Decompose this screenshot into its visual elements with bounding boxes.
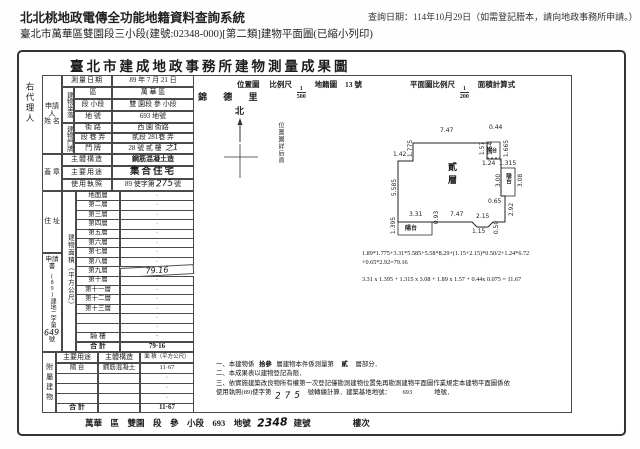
license-hand-number: 275 — [156, 180, 174, 190]
survey-date-value: 89 年 7 月 21 日 — [112, 75, 194, 87]
dim-balcony-tr-left: 1.57 — [479, 142, 486, 155]
floor-plan: 7.47 1.775 1.42 5.585 3.31 1.395 0.93 陽台… — [388, 118, 578, 243]
note-1-fill-floors: 拾參 — [259, 361, 272, 368]
plan-scale-line: 平面圖比例尺 1 200 面積計算式 — [410, 79, 515, 100]
license-label: 使用執照 — [62, 179, 112, 191]
plate-hand-annotation: 之1 — [164, 144, 178, 153]
plate-value-text: 28 號 貳 樓 — [128, 145, 161, 152]
plan-floor-label: 貳層 — [446, 162, 459, 192]
note-3-license-pre: 使用執照(89)使字第 — [216, 389, 271, 396]
cadastral-map-number: 13 號 — [345, 80, 362, 89]
section-value: 雙 園段 參 小段 — [112, 99, 194, 111]
footer-building-no-label: 建號 — [294, 418, 311, 428]
dim-left: 5.585 — [391, 179, 398, 196]
note-3-text: 號轉繪計算．建築基地地號： — [308, 389, 391, 396]
dim-balcony-bl-top: 3.31 — [409, 211, 422, 218]
dim-right: 2.92 — [508, 203, 515, 216]
dim-topleft-v: 1.775 — [407, 140, 414, 157]
address-label: 住 址 — [42, 191, 62, 253]
applicant-label-line2: 姓 名 — [44, 118, 60, 125]
dim-notch-top: 2.15 — [476, 213, 489, 220]
district-value: 萬 華 區 — [112, 87, 194, 99]
cadastral-map-label: 地籍圖 — [315, 80, 338, 89]
seal-label: 蓋 章 — [42, 154, 62, 191]
applicant-name-label: 申請人 姓 名 — [42, 75, 62, 154]
dim-balcony-tr-right: 1.665 — [503, 140, 510, 157]
footer-strip: 萬華 區 雙園 段 參 小段 693 地號 2348 建號 樓次 — [85, 416, 370, 429]
lane-value: 貳段 281巷 弄 — [112, 133, 194, 143]
door-plate-group: 建物門牌 — [62, 123, 74, 154]
footer-floor-label: 樓次 — [353, 418, 370, 428]
dim-notch-height: 0.50 — [493, 221, 500, 234]
note-1: 一、本建物係 拾參 層建物本件係測量第 貳 層部分． — [216, 359, 381, 368]
balcony-label-bl: 陽台 — [405, 223, 417, 232]
annex-side-label: 附屬建物 — [42, 352, 56, 413]
floor-area-column-header: 建物面積（平方公尺） — [62, 191, 76, 352]
district-label: 區 — [74, 87, 112, 99]
scale-fraction-500: 1 500 — [297, 86, 306, 100]
application-doc-number-prefix: (89)建地二字第 — [49, 273, 55, 329]
dim-left-step: 1.42 — [393, 151, 406, 158]
scale-label: 比例尺 — [269, 80, 292, 89]
document-subtitle: 臺北市萬華區雙園段三小段(建號:02348-000)[第二類]建物平面圖(已縮小… — [20, 26, 373, 41]
north-arrow-icon: 北 — [222, 100, 262, 180]
north-indicator: 北 — [222, 100, 262, 180]
landno-value: 693 地號 — [112, 111, 194, 123]
application-doc-suffix: 號 — [49, 337, 56, 344]
balcony-label-right: 陽台 — [504, 173, 512, 193]
arcade-value: · — [120, 332, 194, 342]
location-map-label: 位置圖 — [237, 80, 260, 89]
note-3-hand-number: 275 — [275, 390, 305, 402]
dim-balcony-r-bottom: 0.65 — [488, 198, 501, 205]
dim-notch-bottom: 1.15 — [472, 228, 485, 235]
query-system-page: 北北桃地政電傳全功能地籍資料查詢系統 查詢日期：114年10月29日（如需登記謄… — [0, 0, 640, 449]
dim-balcony-r-left: 3.00 — [495, 174, 502, 187]
note-3-line1: 三、依實施建築改良物所有權第一次登記僅勘測建物位置免再勘測建物平面圖作業規定本建… — [216, 378, 510, 387]
dim-top: 7.47 — [440, 127, 453, 134]
dim-balcony-tr-top: 0.44 — [489, 124, 502, 131]
plan-scale-label: 平面圖比例尺 — [410, 80, 455, 89]
annex-structure-header: 主體構造 — [98, 352, 140, 363]
license-pre: 89 使字第 — [125, 181, 155, 188]
section-label: 段 小段 — [74, 99, 112, 111]
dim-balcony-r-top: 1.315 — [499, 160, 516, 167]
balcony-formula: 3.31 x 1.395 + 1.315 x 3.08 + 1.89 x 1.5… — [362, 276, 521, 283]
application-doc-hand-number: 649 — [44, 328, 60, 337]
scale-fraction-200: 1 200 — [460, 86, 469, 100]
license-value: 89 使字第 275 號 — [112, 179, 194, 191]
lane-label: 段 巷 弄 — [74, 133, 112, 143]
dim-balcony-r-right: 3.08 — [517, 174, 524, 187]
landno-label: 地 號 — [74, 111, 112, 123]
see-next-page-note: 位置圖詳后頁 — [276, 122, 285, 177]
arcade-label: 騎 樓 — [76, 332, 120, 342]
area-formula-line2: +0.65*2.92=79.16 — [362, 259, 408, 266]
application-doc-cell: 申請書 (89)建地二字第 649 號 — [42, 253, 62, 352]
note-1-text2: 層建物本件係測量第 — [276, 361, 334, 368]
footer-hand-building-number: 2348 — [257, 415, 288, 430]
annex-total-label: 合 計 — [56, 403, 98, 413]
street-label: 街 路 — [74, 123, 112, 133]
license-suf: 號 — [174, 181, 181, 188]
system-title: 北北桃地政電傳全功能地籍資料查詢系統 — [20, 7, 245, 26]
fraction-denominator: 500 — [297, 92, 306, 100]
structure-label: 主體構造 — [62, 154, 112, 166]
doc-title: 臺北市建成地政事務所建物測量成果圖 — [70, 55, 351, 75]
plate-label: 門 牌 — [74, 143, 112, 154]
area-calc-label: 面積計算式 — [478, 80, 516, 89]
annex-total-spacer — [98, 403, 140, 413]
note-2: 二、本成果表以建物登記為限． — [216, 368, 305, 377]
dim-balcony-bl-right: 0.93 — [433, 211, 440, 224]
area-formula-line1: 1.89*1.775+3.31*5.585+5.58*8.29+(1.15+2.… — [362, 250, 529, 257]
annex-total-value: 11·67 — [140, 403, 194, 413]
note-1-text: 一、本建物係 — [216, 361, 254, 368]
annex-usage-header: 主要用途 — [56, 352, 98, 363]
fraction-denominator: 200 — [460, 92, 469, 100]
structure-value: 鋼筋混凝土造 — [112, 154, 194, 166]
plate-value: 28 號 貳 樓 之1 — [112, 143, 194, 154]
dim-balcony-bl-left: 1.395 — [390, 217, 397, 234]
survey-date-label: 測量日期 — [62, 75, 112, 87]
note-3-land-number: 693 — [402, 389, 412, 396]
footer-location: 萬華 區 雙園 段 參 小段 693 地號 — [85, 418, 251, 428]
floor-total-value: 79·16 — [120, 342, 194, 352]
floor-total-label: 合 計 — [76, 342, 120, 352]
north-label: 北 — [235, 105, 244, 116]
agent-label: 右代理人 — [24, 82, 36, 146]
application-doc-label: 申請書 — [43, 257, 61, 271]
annex-area-header: 面 積（平方公尺） — [140, 352, 194, 363]
dim-bottom: 7.47 — [450, 211, 463, 218]
note-1-text3: 層部分． — [355, 361, 381, 368]
note-1-fill-floor-no: 貳 — [341, 361, 347, 368]
note-3-tail: 地號． — [428, 389, 454, 396]
usage-label: 主要用途 — [62, 166, 112, 179]
usage-value: 集合住宅 — [112, 166, 194, 179]
balcony-label-tr: 陽台 — [487, 147, 497, 154]
query-date: 查詢日期：114年10月29日（如需登記謄本，請向地政事務所申請。） — [368, 10, 638, 23]
note-3-line2: 使用執照(89)使字第 275 號轉繪計算．建築基地地號： 693 地號． — [216, 387, 453, 397]
dim-balcony-tr-bottom: 1.24 — [482, 160, 495, 167]
building-location-group: 建物坐落 — [62, 87, 74, 123]
street-value: 西 園 街路 — [112, 123, 194, 133]
applicant-label-line1: 申請人 — [43, 103, 61, 118]
